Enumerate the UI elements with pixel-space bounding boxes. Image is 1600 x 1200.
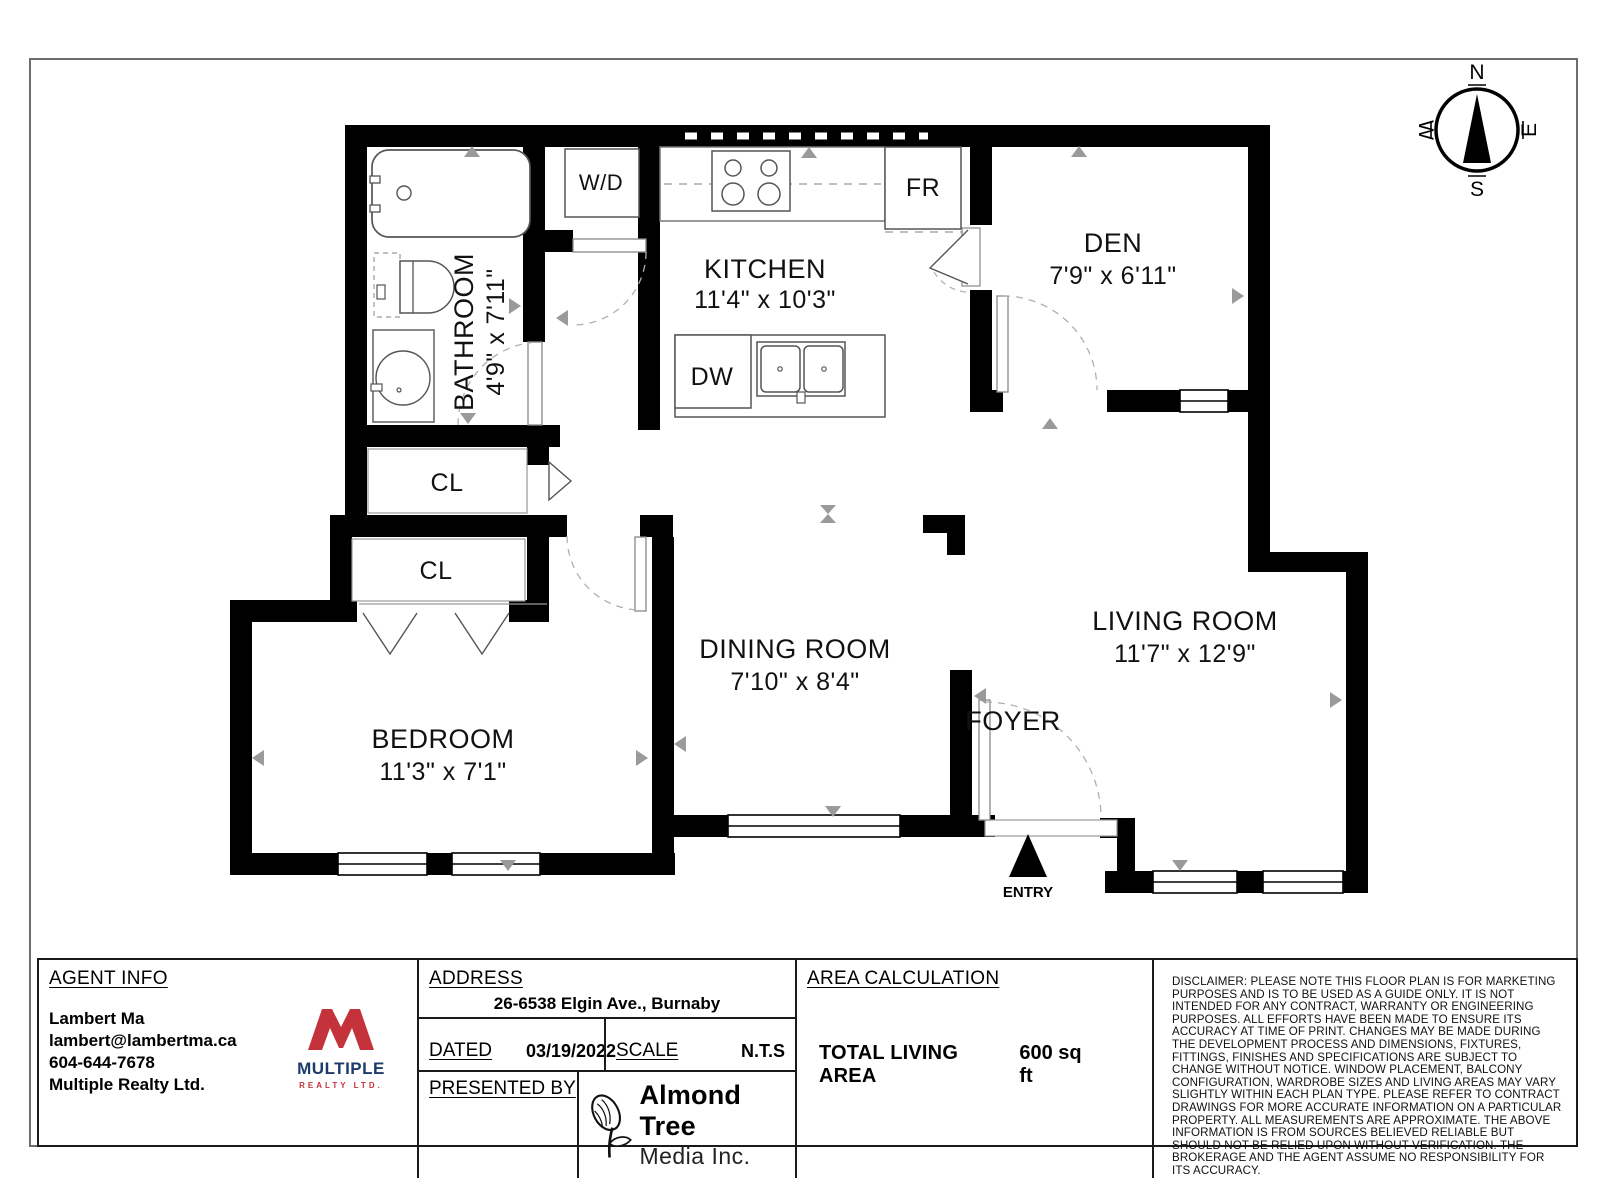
bedroom-closet-bifold-icon xyxy=(455,613,509,654)
agent-info-cell: AGENT INFO Lambert Ma lambert@lambertma.… xyxy=(39,960,417,1178)
total-living-area-label: TOTAL LIVING AREA xyxy=(819,1042,1019,1088)
compass-n: N xyxy=(1469,61,1484,84)
fixture-label-fr: FR xyxy=(906,174,940,202)
sink-faucet xyxy=(797,392,805,403)
tub-faucet xyxy=(370,205,380,212)
hall-closet-bifold-icon xyxy=(549,462,571,500)
room-label-bathroom: BATHROOM 4'9" x 7'11" xyxy=(449,253,510,411)
laundry-door-leaf xyxy=(573,239,646,252)
room-label-bedroom: BEDROOM xyxy=(371,724,514,754)
room-label-living: LIVING ROOM xyxy=(1092,606,1278,636)
area-calculation-cell: AREA CALCULATION TOTAL LIVING AREA 600 s… xyxy=(795,960,1152,1178)
dated-cell: DATED 03/19/2022 xyxy=(419,1019,604,1070)
bathroom-door-leaf xyxy=(528,342,542,425)
brokerage-logo: MULTIPLE REALTY LTD. xyxy=(293,1004,389,1090)
agent-info-heading: AGENT INFO xyxy=(39,960,417,990)
living-window xyxy=(1153,871,1237,893)
svg-text:4'9" x 7'11": 4'9" x 7'11" xyxy=(482,268,510,395)
bedroom-closet-bifold-icon xyxy=(363,613,417,654)
compass-s: S xyxy=(1470,178,1484,201)
fixture-label-wd: W/D xyxy=(579,170,623,195)
fixture-label-dw: DW xyxy=(691,363,734,391)
scale-label: SCALE xyxy=(606,1040,678,1062)
room-dims-bedroom: 11'3" x 7'1" xyxy=(379,758,506,786)
room-dims-den: 7'9" x 6'11" xyxy=(1049,262,1176,290)
room-dims-dining: 7'10" x 8'4" xyxy=(730,668,859,696)
room-label-foyer: FOYER xyxy=(965,706,1061,736)
stove xyxy=(712,151,790,211)
almond-tree-icon xyxy=(585,1088,639,1162)
bathtub xyxy=(372,150,530,237)
room-label-den: DEN xyxy=(1084,228,1143,258)
disclaimer-text: DISCLAIMER: PLEASE NOTE THIS FLOOR PLAN … xyxy=(1154,960,1576,1178)
presented-by-label: PRESENTED BY xyxy=(419,1072,577,1178)
kitchen-den-door-leaf xyxy=(930,230,968,284)
dated-value: 03/19/2022 xyxy=(526,1041,616,1062)
laundry-door-arc xyxy=(573,252,646,325)
bedroom-window xyxy=(452,853,540,875)
media-line1: Almond Tree xyxy=(639,1080,795,1142)
title-block: AGENT INFO Lambert Ma lambert@lambertma.… xyxy=(37,958,1578,1147)
closet-label-hall: CL xyxy=(431,469,464,497)
den-door-arc xyxy=(1003,296,1097,390)
dated-label: DATED xyxy=(419,1040,492,1062)
room-dims-kitchen: 11'4" x 10'3" xyxy=(694,286,836,314)
address-heading: ADDRESS xyxy=(419,960,795,990)
compass-needle-icon xyxy=(1463,94,1491,163)
entry-threshold xyxy=(985,820,1117,836)
entry-label: ENTRY xyxy=(1003,884,1053,901)
room-label-dining: DINING ROOM xyxy=(699,634,891,664)
brokerage-m-icon xyxy=(305,1004,377,1052)
living-window xyxy=(1263,871,1343,893)
room-label-kitchen: KITCHEN xyxy=(704,254,826,284)
entry-arrow-icon xyxy=(1009,834,1047,877)
bedroom-door-leaf xyxy=(635,537,646,611)
den-door-leaf xyxy=(997,296,1008,392)
svg-text:BATHROOM: BATHROOM xyxy=(449,253,479,411)
bathroom-sink xyxy=(371,330,434,422)
floor-plan-svg: ENTRY KITCHEN 11'4" x 10'3" BATHROOM 4'9… xyxy=(0,0,1600,950)
bedroom-door-arc xyxy=(567,536,641,610)
room-dims-living: 11'7" x 12'9" xyxy=(1114,640,1256,668)
kitchen-sink xyxy=(757,342,845,403)
address-value: 26-6538 Elgin Ave., Burnaby xyxy=(419,994,795,1014)
brokerage-tagline: REALTY LTD. xyxy=(293,1081,389,1090)
scale-value: N.T.S xyxy=(741,1041,785,1062)
compass: N S W E xyxy=(1414,61,1541,201)
compass-e: E xyxy=(1518,123,1541,137)
total-living-area-value: 600 sq ft xyxy=(1019,1042,1100,1088)
den-window xyxy=(1180,390,1228,412)
disclaimer-cell: DISCLAIMER: PLEASE NOTE THIS FLOOR PLAN … xyxy=(1152,960,1576,1178)
media-line2: Media Inc. xyxy=(639,1143,795,1170)
address-cell: ADDRESS 26-6538 Elgin Ave., Burnaby DATE… xyxy=(417,960,795,1178)
area-heading: AREA CALCULATION xyxy=(797,960,1152,990)
media-logo: Almond Tree Media Inc. xyxy=(577,1072,795,1178)
dining-window xyxy=(728,815,900,837)
tub-drain xyxy=(397,186,411,200)
tub-faucet xyxy=(370,176,380,183)
brokerage-word: MULTIPLE xyxy=(293,1059,389,1079)
toilet xyxy=(374,253,454,317)
bedroom-window xyxy=(338,853,427,875)
scale-cell: SCALE N.T.S xyxy=(604,1019,795,1070)
closet-label-bedroom: CL xyxy=(420,557,453,585)
compass-w: W xyxy=(1414,120,1437,140)
